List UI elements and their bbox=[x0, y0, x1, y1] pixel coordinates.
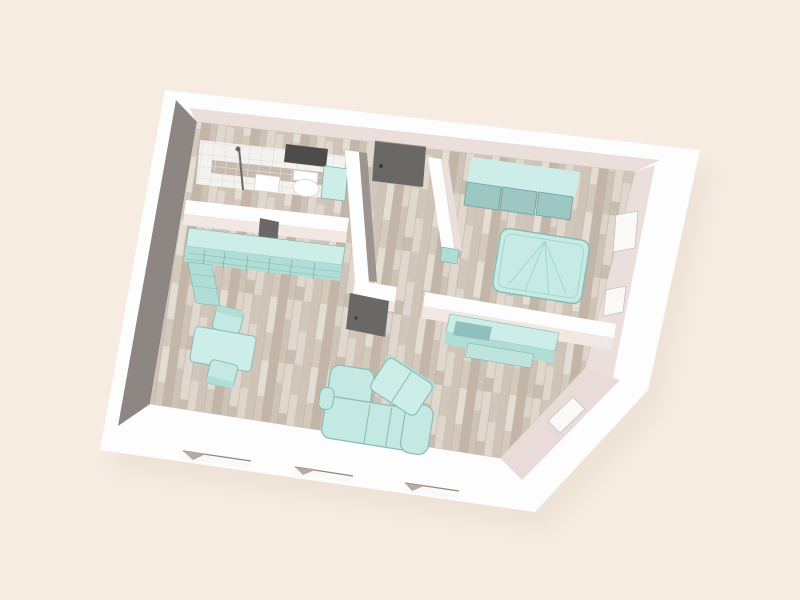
wardrobe-sliding-panel-1 bbox=[464, 182, 501, 210]
bathroom-sink bbox=[254, 174, 280, 193]
entry-door-handle-icon bbox=[379, 164, 383, 168]
shower-head-icon bbox=[236, 147, 241, 152]
radiator bbox=[440, 247, 459, 264]
entry-door bbox=[372, 141, 426, 187]
bedroom-right-window bbox=[613, 211, 638, 252]
wardrobe-sliding-panel-3 bbox=[536, 192, 573, 220]
wardrobe-sliding-panel-2 bbox=[500, 187, 537, 215]
bathtub bbox=[321, 166, 348, 201]
floor-plan-3d-viewport[interactable] bbox=[0, 0, 800, 600]
living-right-window bbox=[603, 286, 626, 316]
double-bed bbox=[492, 227, 591, 304]
living-door-handle-icon bbox=[354, 316, 357, 319]
